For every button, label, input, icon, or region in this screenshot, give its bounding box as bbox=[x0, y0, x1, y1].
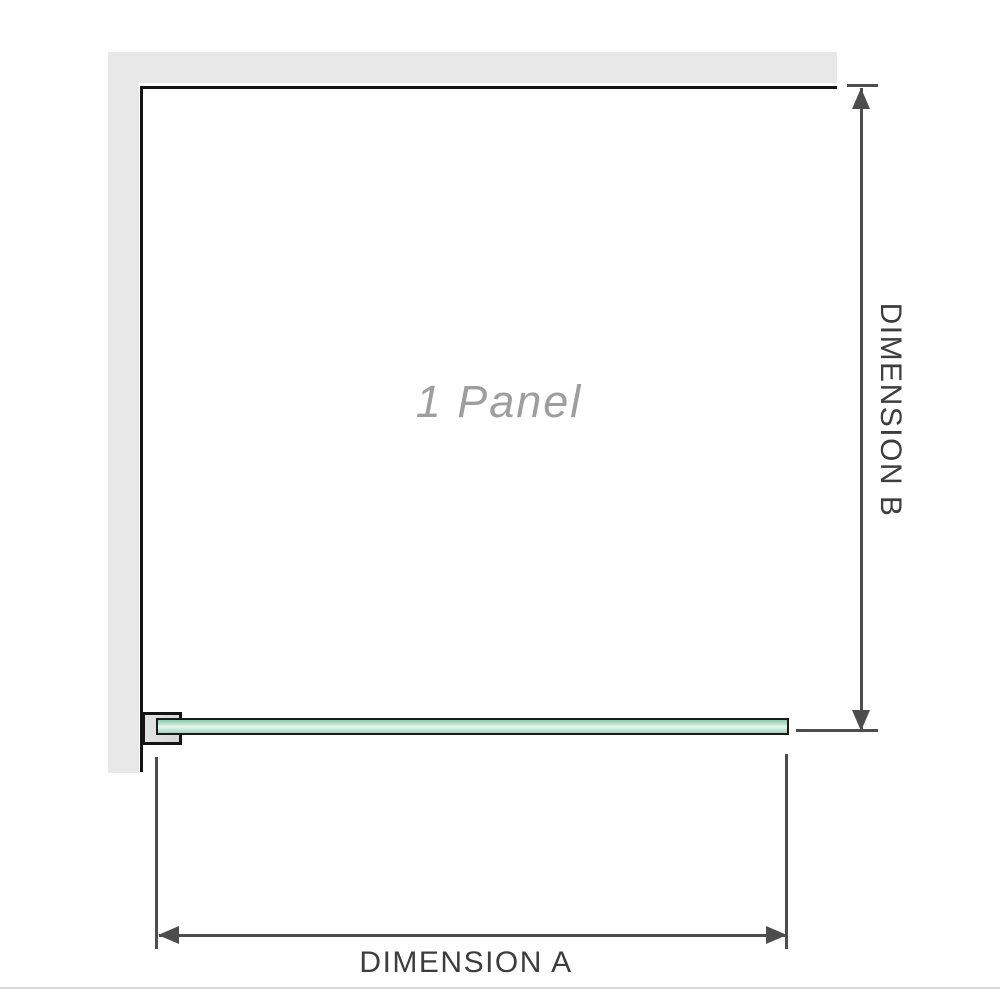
arrow-right-icon bbox=[766, 926, 787, 944]
dimension-b-arrow-line bbox=[860, 88, 863, 732]
wall-left bbox=[108, 52, 139, 773]
panel-frame-left-edge bbox=[140, 86, 143, 772]
dimension-b-top-tick bbox=[847, 84, 878, 87]
dimension-a-label: DIMENSION A bbox=[359, 946, 572, 980]
dimension-a-left-extension-line bbox=[155, 757, 158, 949]
panel-dimension-diagram: 1 Panel DIMENSION B DIMENSION A bbox=[0, 0, 1000, 1000]
arrow-down-icon bbox=[852, 710, 870, 731]
glass-panel bbox=[156, 718, 789, 735]
image-bottom-border bbox=[0, 987, 1000, 989]
dimension-a-arrow-line bbox=[159, 934, 787, 937]
arrow-up-icon bbox=[852, 88, 870, 109]
panel-frame-top-edge bbox=[140, 86, 837, 89]
dimension-a-right-extension-line bbox=[785, 754, 788, 949]
panel-count-label: 1 Panel bbox=[416, 376, 583, 428]
dimension-b-label: DIMENSION B bbox=[873, 303, 907, 518]
wall-top bbox=[108, 52, 837, 83]
arrow-left-icon bbox=[158, 926, 179, 944]
